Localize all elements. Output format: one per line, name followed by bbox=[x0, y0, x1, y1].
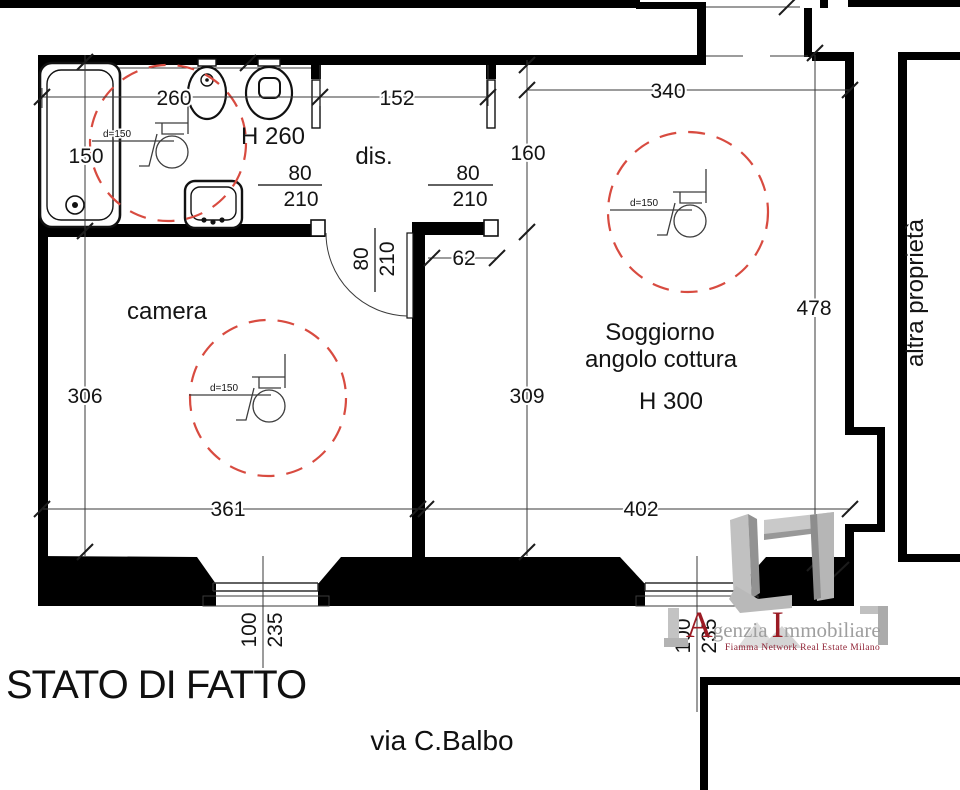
dim-tub-length: 150 bbox=[68, 145, 103, 168]
neighbor-property-label: altra proprietà bbox=[902, 218, 929, 367]
logo-initial-a: A bbox=[686, 605, 713, 646]
room-labels: camera dis. Soggiorno angolo cottura H 3… bbox=[127, 123, 929, 415]
turning-circle-camera: d=150 bbox=[189, 320, 346, 476]
logo-word-1: genzia bbox=[713, 618, 768, 642]
dim-camera-width: 361 bbox=[210, 498, 245, 521]
room-label-soggiorno-2: angolo cottura bbox=[585, 346, 738, 373]
street-label: via C.Balbo bbox=[370, 725, 513, 756]
door-swing-camera bbox=[326, 233, 413, 318]
room-label-soggiorno-1: Soggiorno bbox=[605, 319, 714, 346]
floor-plan-drawing: d=150 d=150 d=150 bbox=[0, 0, 960, 790]
window-width: 100 bbox=[238, 612, 261, 647]
dim-niche-width: 62 bbox=[452, 247, 475, 270]
door-size-bathroom: 80 210 bbox=[283, 162, 318, 211]
door-width: 80 bbox=[456, 162, 479, 185]
window-left bbox=[203, 583, 329, 606]
dimension-lines bbox=[42, 55, 850, 712]
door-height: 210 bbox=[376, 241, 399, 276]
dim-sogg-bottom-width: 402 bbox=[623, 498, 658, 521]
dim-sogg-east-depth: 478 bbox=[796, 297, 831, 320]
turning-circle-soggiorno: d=150 bbox=[608, 132, 768, 292]
agency-logo-text: AgenziaImmobiliare bbox=[686, 605, 881, 646]
door-width: 80 bbox=[350, 247, 373, 270]
door-size-soggiorno: 80 210 bbox=[452, 162, 487, 211]
door-height: 210 bbox=[452, 188, 487, 211]
dim-camera-depth: 306 bbox=[67, 385, 102, 408]
dim-bath-width: 260 bbox=[156, 87, 191, 110]
room-height-soggiorno: H 300 bbox=[639, 388, 703, 415]
floor-plan-page: d=150 d=150 d=150 bbox=[0, 0, 960, 790]
dim-sogg-west-depth: 309 bbox=[509, 385, 544, 408]
plan-title: STATO DI FATTO bbox=[6, 663, 306, 707]
sink bbox=[185, 181, 242, 228]
room-height-bath: H 260 bbox=[241, 123, 305, 150]
turning-circle-label: d=150 bbox=[103, 129, 132, 140]
logo-word-2: mmobiliare bbox=[784, 618, 881, 642]
door-width: 80 bbox=[288, 162, 311, 185]
logo-initial-i: I bbox=[772, 605, 784, 646]
dim-sogg-top-width: 340 bbox=[650, 80, 685, 103]
agency-tagline: Fiamma Network Real Estate Milano bbox=[725, 643, 880, 653]
turning-circle-label: d=150 bbox=[210, 383, 239, 394]
window-height: 235 bbox=[264, 612, 287, 647]
dim-dis-width: 152 bbox=[379, 87, 414, 110]
room-label-dis: dis. bbox=[355, 143, 392, 170]
room-label-camera: camera bbox=[127, 298, 208, 325]
turning-circle-label: d=150 bbox=[630, 198, 659, 209]
dim-dis-depth: 160 bbox=[510, 142, 545, 165]
door-height: 210 bbox=[283, 188, 318, 211]
